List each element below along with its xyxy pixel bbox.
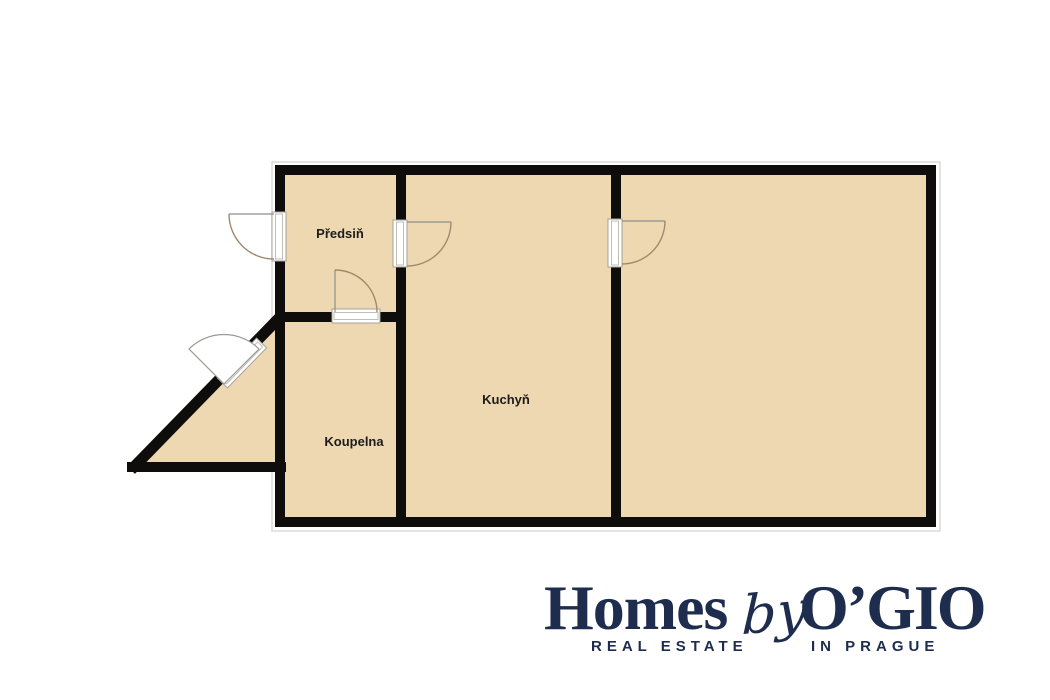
entry-door-arc <box>229 214 274 259</box>
kitchen-room-door-frame <box>608 219 622 267</box>
room-label-kitchen: Kuchyň <box>482 392 530 407</box>
logo-word-homes: Homes <box>544 576 727 640</box>
hallway-bathroom-door-frame <box>332 309 380 323</box>
room-label-hallway: Předsiň <box>316 226 364 241</box>
logo-tagline-in-prague: IN PRAGUE <box>811 639 939 654</box>
room-label-bathroom: Koupelna <box>324 434 384 449</box>
page: Předsiň Kuchyň Koupelna Homes by O’GIO R… <box>0 0 1050 700</box>
entry-door-frame <box>272 212 286 261</box>
logo-word-ogio: O’GIO <box>799 576 985 640</box>
logo-tagline-real-estate: REAL ESTATE <box>591 639 748 654</box>
hallway-kitchen-door-frame <box>393 220 407 267</box>
floor-main <box>278 168 933 524</box>
